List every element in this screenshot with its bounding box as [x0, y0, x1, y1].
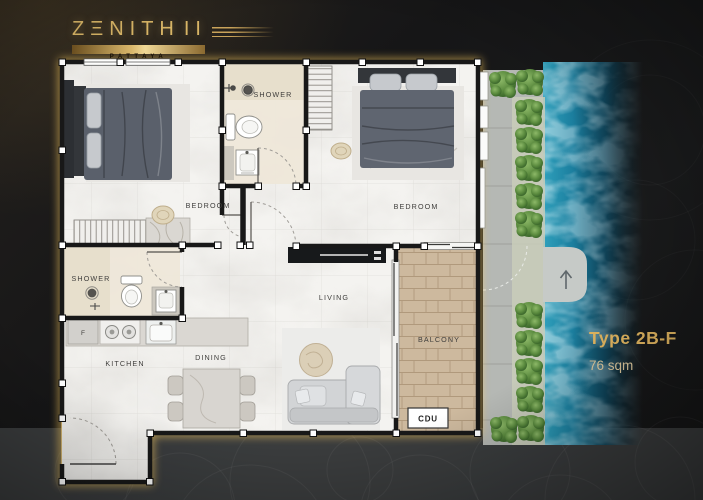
label-fridge: F: [81, 330, 85, 337]
logo-subtitle-bar: PATTAYA: [72, 45, 205, 54]
label-balcony: BALCONY: [418, 335, 460, 344]
label-bedroom-left: BEDROOM: [186, 201, 231, 210]
label-dining: DINING: [195, 353, 227, 362]
toilet-icon: [226, 114, 262, 140]
coffee-table: [300, 344, 333, 377]
sink-icon: [224, 146, 259, 180]
dining-table: [183, 369, 240, 428]
pouf: [331, 143, 351, 159]
label-living: LIVING: [319, 293, 349, 302]
label-shower-top: SHOWER: [254, 90, 293, 99]
kitchen-sink-icon: [146, 320, 176, 344]
floorplan-poster: SHOWER BEDROOM BEDROOM SHOWER KITCHEN DI…: [0, 0, 703, 500]
logo-speedlines-icon: [212, 27, 274, 38]
label-bedroom-right: BEDROOM: [394, 202, 439, 211]
bed-left: [64, 80, 190, 182]
floorplan-scene: SHOWER BEDROOM BEDROOM SHOWER KITCHEN DI…: [0, 0, 703, 500]
brand-name: ZΞNITHII: [72, 18, 207, 41]
logo-subtitle: PATTAYA: [110, 54, 167, 60]
pouf: [152, 206, 174, 224]
unit-info: Type 2B-F 76 sqm: [589, 328, 677, 373]
stove-icon: [100, 320, 140, 344]
logo: ZΞNITHII PATTAYA: [72, 18, 207, 41]
label-kitchen: KITCHEN: [105, 359, 144, 368]
label-shower-left: SHOWER: [72, 274, 111, 283]
label-cdu: CDU: [418, 415, 438, 424]
unit-type: Type 2B-F: [589, 328, 677, 349]
unit-area: 76 sqm: [589, 358, 677, 373]
sink-icon: [152, 287, 180, 315]
kitchen-counter: [66, 318, 248, 346]
pool-deck: [543, 247, 587, 302]
toilet-icon: [121, 276, 142, 307]
